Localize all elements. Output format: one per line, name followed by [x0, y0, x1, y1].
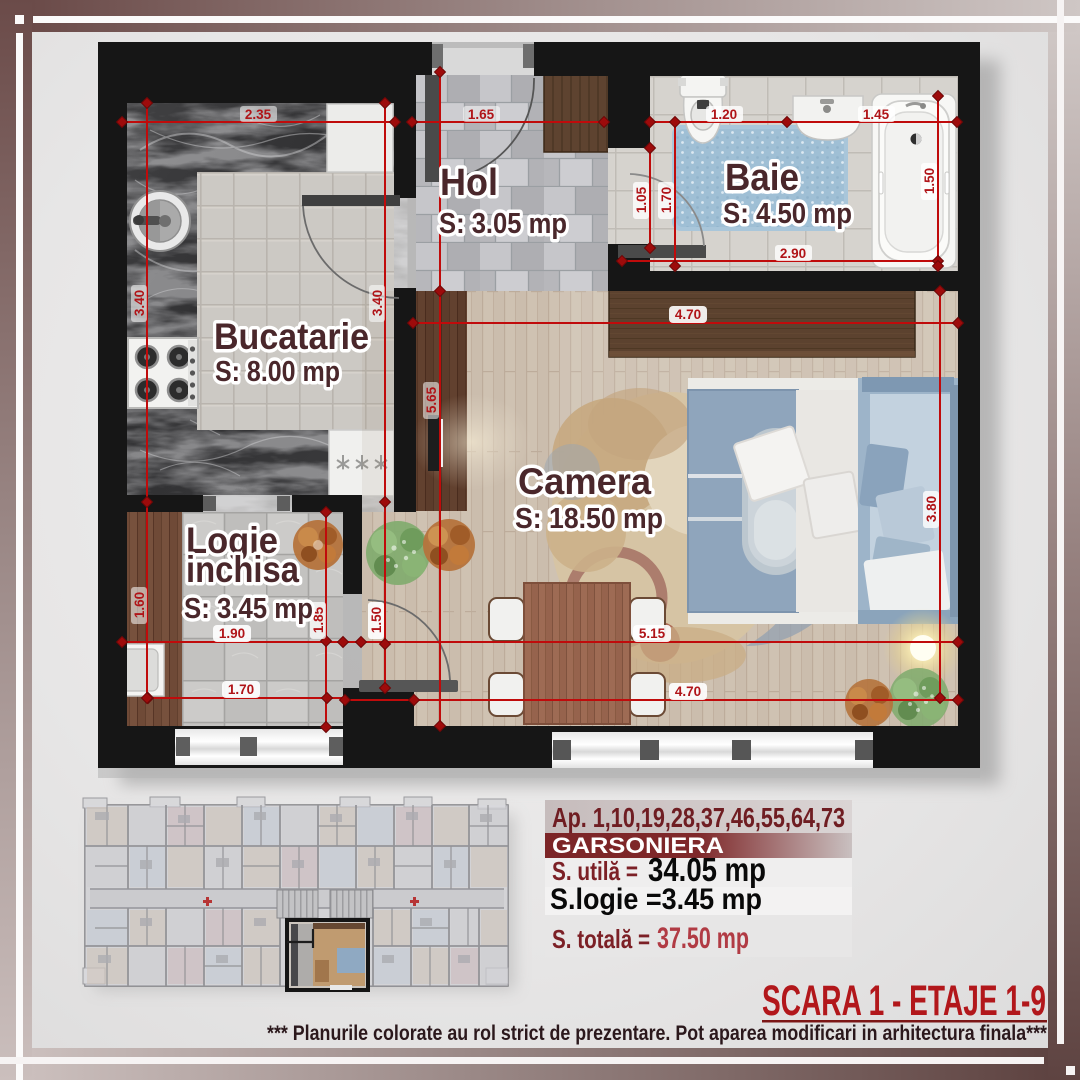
svg-text:inchisa: inchisa: [186, 549, 299, 590]
svg-text:2.90: 2.90: [780, 246, 806, 261]
svg-text:37.50 mp: 37.50 mp: [657, 922, 749, 955]
svg-text:1.50: 1.50: [369, 607, 384, 633]
svg-text:Bucatarie: Bucatarie: [214, 316, 369, 357]
svg-text:3.40: 3.40: [370, 290, 385, 316]
svg-text:SCARA 1 - ETAJE 1-9: SCARA 1 - ETAJE 1-9: [762, 977, 1046, 1025]
svg-text:S: 3.45 mp: S: 3.45 mp: [184, 593, 313, 625]
svg-text:Camera: Camera: [518, 461, 651, 502]
svg-text:S: 8.00 mp: S: 8.00 mp: [215, 356, 340, 388]
svg-text:4.70: 4.70: [675, 307, 701, 322]
svg-text:Ap. 1,10,19,28,37,46,55,64,73: Ap. 1,10,19,28,37,46,55,64,73: [552, 802, 845, 833]
svg-text:*** Planurile colorate au rol: *** Planurile colorate au rol strict de …: [267, 1022, 1048, 1045]
svg-text:S: 4.50 mp: S: 4.50 mp: [723, 198, 852, 230]
svg-text:1.05: 1.05: [634, 186, 649, 213]
svg-text:2.35: 2.35: [245, 107, 272, 122]
svg-text:1.45: 1.45: [863, 107, 890, 122]
svg-text:S: 18.50 mp: S: 18.50 mp: [515, 503, 663, 535]
svg-text:1.90: 1.90: [219, 626, 245, 641]
svg-text:S. totală =: S. totală =: [552, 924, 650, 954]
svg-text:S.logie =3.45 mp: S.logie =3.45 mp: [550, 883, 762, 916]
svg-text:1.70: 1.70: [228, 682, 254, 697]
svg-text:1.65: 1.65: [468, 107, 495, 122]
svg-text:1.70: 1.70: [659, 187, 674, 213]
svg-text:1.85: 1.85: [311, 606, 326, 633]
svg-text:3.40: 3.40: [132, 290, 147, 316]
svg-text:1.60: 1.60: [132, 592, 147, 618]
svg-text:Hol: Hol: [440, 162, 498, 204]
svg-text:3.80: 3.80: [924, 496, 939, 522]
svg-text:1.20: 1.20: [711, 107, 737, 122]
svg-text:5.15: 5.15: [639, 626, 666, 641]
svg-text:S: 3.05 mp: S: 3.05 mp: [439, 208, 567, 240]
svg-text:1.50: 1.50: [922, 168, 937, 194]
svg-text:Baie: Baie: [725, 157, 799, 199]
svg-text:5.65: 5.65: [424, 386, 439, 413]
svg-text:S. utilă =: S. utilă =: [552, 856, 638, 886]
svg-text:4.70: 4.70: [675, 684, 701, 699]
